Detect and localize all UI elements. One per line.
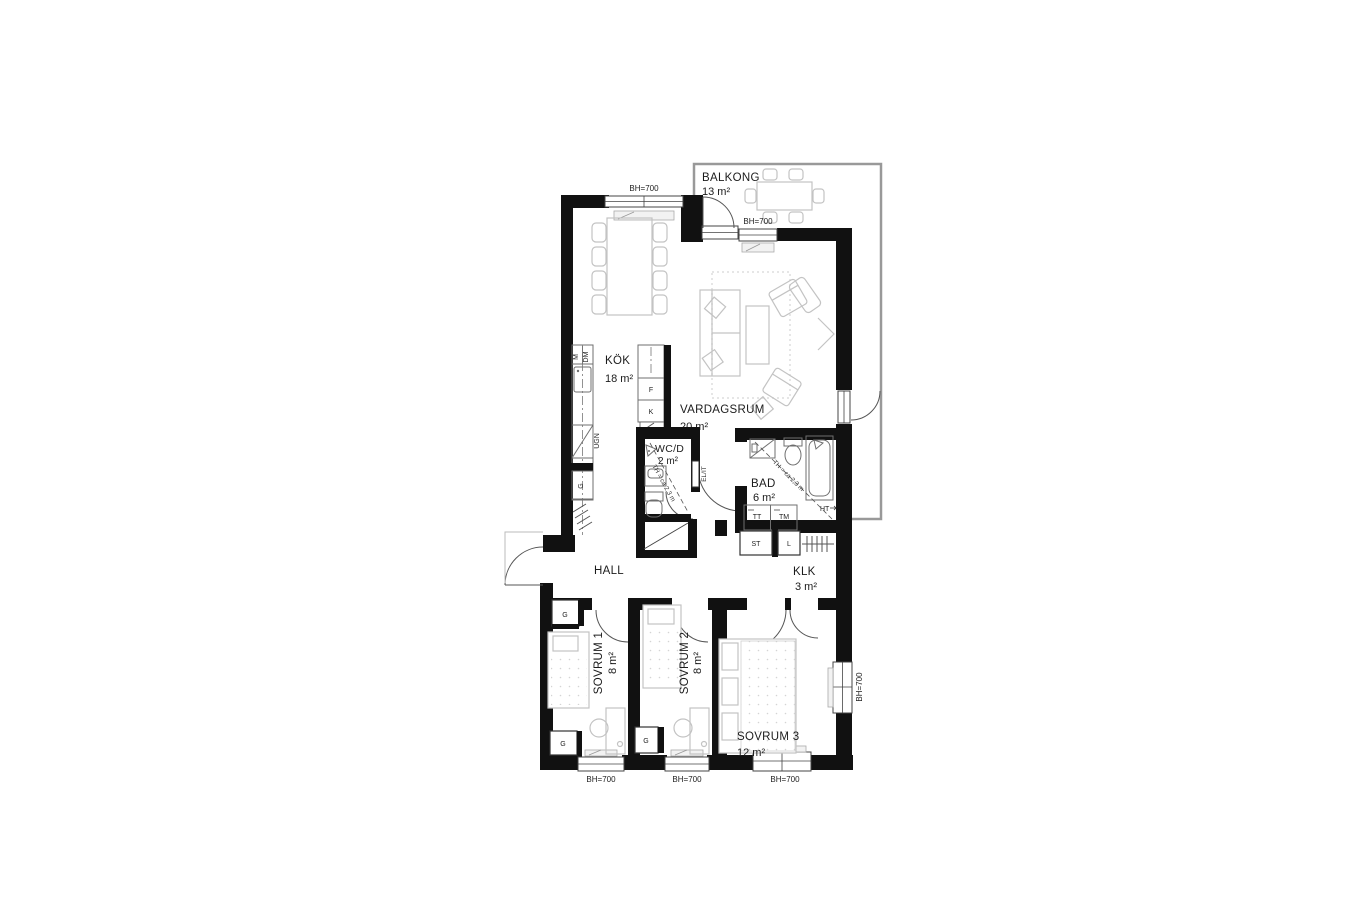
sofa-icon xyxy=(700,290,740,376)
window-bedroom1: BH=700 xyxy=(578,750,624,784)
linen-closet-label: L xyxy=(787,541,791,548)
oven-label: UGN xyxy=(594,433,601,449)
dryer-label: TT xyxy=(753,514,762,521)
armchair-icon xyxy=(762,367,802,407)
fridge-freezer-icon: F K xyxy=(638,345,664,432)
window-kitchen: BH=700 xyxy=(605,184,683,220)
toilet-icon xyxy=(784,438,802,465)
hall: HALL xyxy=(594,565,624,577)
living-room: VARDAGSRUM 20 m² xyxy=(680,272,834,433)
desk-chair-icon xyxy=(674,708,709,754)
towel-rail-icon: HT xyxy=(820,506,836,513)
tv-icon xyxy=(818,318,834,350)
window-height-label: BH=700 xyxy=(770,775,800,784)
window-height-label: BH=700 xyxy=(743,217,773,226)
wc-shower-room: TH = ca 2,3 m WC/D 2 m² EL/IT xyxy=(636,345,708,558)
room-label-sovrum3: SOVRUM 3 xyxy=(737,731,799,743)
bathroom: TT TM HT TH = ca 2,3 m BAD 6 m² xyxy=(735,428,852,533)
shaft-diagonal xyxy=(644,523,688,549)
coffee-table-icon xyxy=(746,306,769,364)
cleaning-closet-label: ST xyxy=(752,541,762,548)
wardrobe-label: G xyxy=(562,612,567,619)
room-label-sovrum2: SOVRUM 2 xyxy=(679,632,691,694)
room-area-sovrum2: 8 m² xyxy=(692,652,704,674)
dining-table-icon xyxy=(592,218,667,315)
room-area-bad: 6 m² xyxy=(753,492,775,504)
washer-label: TM xyxy=(779,514,789,521)
room-label-kok: KÖK xyxy=(605,355,630,367)
room-area-balkong: 13 m² xyxy=(702,186,730,198)
room-area-sovrum3: 12 m² xyxy=(737,747,765,759)
bathtub-icon xyxy=(806,436,833,500)
room-label-vardagsrum: VARDAGSRUM xyxy=(680,404,765,416)
room-label-sovrum1: SOVRUM 1 xyxy=(593,632,605,694)
room-area-sovrum1: 8 m² xyxy=(607,652,619,674)
balcony-outline xyxy=(694,164,881,519)
wardrobe-label: G xyxy=(560,741,565,748)
armchair-icon xyxy=(768,278,808,317)
dishwasher-label: DM xyxy=(583,351,590,362)
window-height-label: BH=700 xyxy=(855,672,864,702)
room-area-klk: 3 m² xyxy=(795,581,817,593)
balcony-door-side xyxy=(838,391,880,423)
room-label-balkong: BALKONG xyxy=(702,172,760,184)
fridge-label: F xyxy=(649,387,653,394)
floor-plan-drawing: BALKONG 13 m² BH=700 xyxy=(0,0,1366,911)
window-height-label: BH=700 xyxy=(672,775,702,784)
floor-plan-page: BALKONG 13 m² BH=700 xyxy=(0,0,1366,911)
desk-chair-icon xyxy=(590,708,625,754)
freezer-label: K xyxy=(649,409,654,416)
electrical-cabinet-icon xyxy=(692,461,699,487)
kitchen: M DM UGN G F K xyxy=(566,218,667,535)
room-label-wcd: WC/D xyxy=(655,443,684,455)
room-area-kok: 18 m² xyxy=(605,373,633,385)
wardrobe-label: G xyxy=(578,483,585,488)
lounge-chair-icon xyxy=(788,276,822,314)
window-livingroom: BH=700 xyxy=(739,217,777,252)
rug-icon xyxy=(712,272,790,398)
bedroom-3: SOVRUM 3 12 m² xyxy=(719,639,799,759)
electrical-label: EL/IT xyxy=(701,466,708,482)
room-label-klk: KLK xyxy=(793,566,816,578)
balcony-door xyxy=(702,197,738,239)
window-bedroom2: BH=700 xyxy=(665,750,709,784)
room-label-bad: BAD xyxy=(751,478,776,490)
microwave-label: M xyxy=(573,354,580,360)
bedroom3-closet-door xyxy=(790,610,818,638)
washbasin-icon xyxy=(750,439,775,458)
bedroom-1: G G SOVRUM 1 8 m² xyxy=(548,600,625,755)
wardrobe-label: G xyxy=(643,738,648,745)
ceiling-height-label: TH = ca 2,3 m xyxy=(771,459,805,493)
bedroom-2: G SOVRUM 2 8 m² xyxy=(635,605,709,754)
radiator-icon xyxy=(802,536,834,552)
room-area-wcd: 2 m² xyxy=(658,456,679,467)
window-bedroom3-side: BH=700 xyxy=(828,662,864,713)
bed-icon xyxy=(643,605,681,688)
entrance-door xyxy=(505,532,543,585)
balcony: BALKONG 13 m² xyxy=(694,164,881,519)
window-height-label: BH=700 xyxy=(586,775,616,784)
window-height-label: BH=700 xyxy=(629,184,659,193)
room-label-hall: HALL xyxy=(594,565,624,577)
bed-icon xyxy=(548,632,589,708)
toilet-icon xyxy=(645,492,663,517)
